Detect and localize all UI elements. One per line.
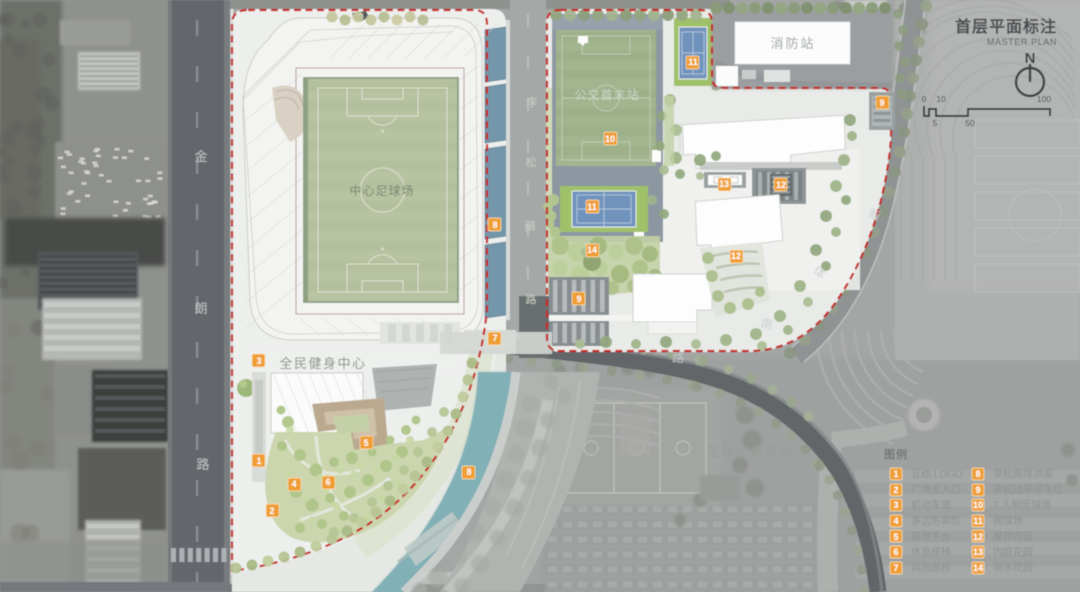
- svg-text:12: 12: [776, 180, 786, 190]
- svg-text:13: 13: [973, 547, 983, 557]
- svg-text:7: 7: [893, 563, 898, 573]
- svg-text:4: 4: [291, 479, 296, 489]
- svg-text:蓢: 蓢: [525, 220, 536, 233]
- svg-text:4: 4: [893, 516, 898, 526]
- svg-text:7 人制足球场: 7 人制足球场: [993, 499, 1051, 512]
- svg-text:12: 12: [973, 532, 983, 542]
- svg-text:2: 2: [269, 506, 274, 516]
- svg-text:10: 10: [605, 134, 615, 144]
- svg-text:8: 8: [975, 469, 980, 479]
- svg-text:路: 路: [196, 457, 209, 472]
- svg-text:风雨廊桥: 风雨廊桥: [911, 561, 951, 574]
- svg-text:2: 2: [893, 485, 898, 495]
- svg-text:1: 1: [256, 456, 261, 466]
- svg-text:9: 9: [879, 98, 884, 108]
- svg-text:9: 9: [576, 294, 581, 304]
- svg-text:12: 12: [731, 251, 741, 261]
- svg-text:互动 LOGO: 互动 LOGO: [911, 469, 963, 481]
- svg-text:屋顶花园: 屋顶花园: [993, 530, 1033, 543]
- svg-text:多边形草阶: 多边形草阶: [911, 514, 961, 527]
- svg-text:休息座椅: 休息座椅: [911, 546, 951, 559]
- svg-text:7: 7: [492, 333, 497, 343]
- svg-text:足球训练基地: 足球训练基地: [706, 444, 793, 459]
- svg-text:李松蓢排洪渠: 李松蓢排洪渠: [993, 468, 1053, 481]
- svg-text:0: 0: [922, 94, 927, 104]
- svg-text:8: 8: [466, 467, 471, 477]
- svg-text:10: 10: [973, 500, 983, 510]
- svg-text:中心足球场: 中心足球场: [349, 183, 414, 198]
- svg-text:路: 路: [672, 350, 684, 365]
- svg-text:11: 11: [973, 516, 983, 526]
- svg-text:南: 南: [760, 315, 774, 332]
- svg-text:13: 13: [719, 179, 729, 189]
- svg-text:广场主入口: 广场主入口: [911, 483, 961, 496]
- svg-text:路: 路: [526, 293, 537, 306]
- svg-text:5: 5: [893, 532, 898, 542]
- svg-text:李: 李: [527, 95, 538, 109]
- svg-text:6: 6: [893, 547, 898, 557]
- svg-text:3: 3: [893, 500, 898, 510]
- svg-text:公交首末站: 公交首末站: [574, 87, 639, 102]
- svg-text:MASTER PLAN: MASTER PLAN: [987, 37, 1057, 47]
- svg-text:10: 10: [936, 94, 946, 104]
- svg-text:9: 9: [975, 485, 980, 495]
- svg-text:图例: 图例: [884, 447, 908, 461]
- svg-text:11: 11: [688, 57, 698, 67]
- svg-text:14: 14: [587, 245, 597, 255]
- svg-text:观景平台: 观景平台: [911, 530, 951, 543]
- svg-text:首层平面标注: 首层平面标注: [955, 17, 1057, 36]
- svg-text:100: 100: [1037, 94, 1051, 104]
- svg-text:50: 50: [965, 118, 975, 128]
- svg-text:11: 11: [587, 202, 597, 212]
- svg-text:消防站: 消防站: [770, 36, 815, 51]
- svg-text:5: 5: [933, 118, 938, 128]
- svg-text:5: 5: [363, 438, 368, 448]
- svg-text:1: 1: [893, 469, 898, 479]
- svg-text:非机动车停车位: 非机动车停车位: [993, 483, 1063, 496]
- svg-text:6: 6: [325, 477, 330, 487]
- svg-text:金: 金: [194, 149, 207, 164]
- svg-text:朗: 朗: [194, 301, 207, 316]
- svg-text:3: 3: [256, 356, 261, 366]
- svg-text:14: 14: [973, 563, 983, 573]
- svg-text:内庭花园: 内庭花园: [993, 546, 1033, 559]
- svg-text:网球场: 网球场: [993, 514, 1023, 527]
- svg-text:雨水花园: 雨水花园: [993, 561, 1033, 574]
- svg-text:机动车道: 机动车道: [911, 499, 951, 512]
- svg-text:松: 松: [526, 155, 537, 169]
- svg-text:全民健身中心: 全民健身中心: [279, 356, 366, 371]
- svg-text:8: 8: [492, 220, 497, 230]
